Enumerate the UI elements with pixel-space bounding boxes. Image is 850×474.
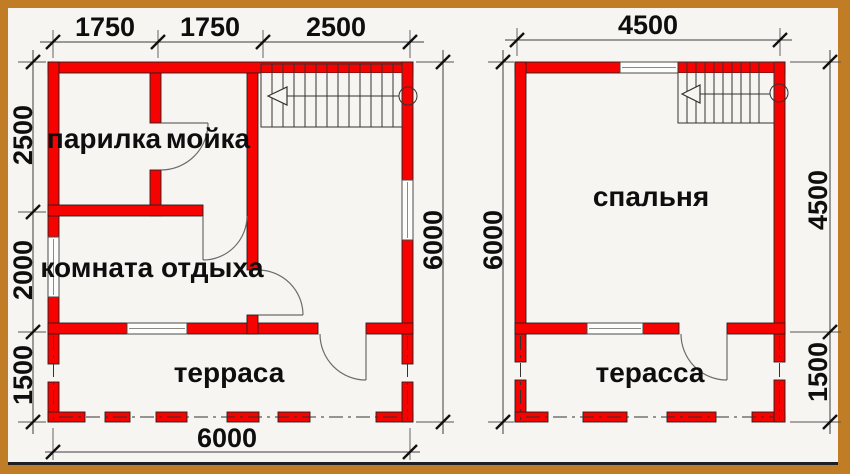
second-floor-plan: 4500 6000 4500 1500 — [478, 10, 841, 434]
drawing-sheet: 1750 1750 2500 2500 2000 1500 — [0, 0, 850, 474]
wall-segment — [515, 323, 587, 334]
wall-segment — [48, 323, 127, 334]
dim-label: 4500 — [618, 10, 678, 40]
room-label-terrasa: терраса — [174, 357, 285, 388]
wall-segment — [247, 73, 258, 270]
bottom-divider-line — [8, 462, 838, 465]
door — [258, 270, 303, 315]
dim-label: 1500 — [803, 342, 833, 402]
room-label-terassa: терасса — [595, 357, 704, 388]
dim-label: 2000 — [8, 240, 38, 300]
wall-segment — [48, 205, 203, 216]
dimensions-second-floor-top: 4500 — [505, 10, 792, 56]
window — [127, 323, 187, 334]
wall-segment — [150, 73, 161, 123]
room-labels-second-floor: спальня терасса — [593, 181, 709, 388]
dimensions-first-floor-bottom: 6000 — [45, 423, 420, 460]
dimensions-first-floor-left: 2500 2000 1500 — [8, 50, 46, 434]
first-floor-plan: 1750 1750 2500 2500 2000 1500 — [8, 12, 454, 460]
room-label-komnata-otdyha: комната отдыха — [40, 252, 264, 283]
wall-segment — [643, 323, 679, 334]
room-label-spalnya: спальня — [593, 181, 709, 212]
dimensions-first-floor-right: 6000 — [416, 50, 454, 434]
wall-segment — [247, 315, 258, 334]
wall-segment — [774, 62, 785, 334]
dimensions-first-floor-top: 1750 1750 2500 — [40, 12, 424, 58]
staircase-first-floor — [261, 64, 417, 127]
window — [402, 180, 413, 240]
door — [320, 334, 366, 380]
room-label-parilka: парилка — [47, 123, 162, 154]
dim-label: 1500 — [8, 345, 38, 405]
dim-label: 1750 — [75, 12, 135, 42]
wall-segment — [402, 62, 413, 180]
dim-label: 6000 — [418, 210, 448, 270]
wall-segment — [515, 62, 620, 73]
dim-label: 4500 — [803, 170, 833, 230]
dim-label: 1750 — [180, 12, 240, 42]
dimensions-second-floor-right: 4500 1500 — [790, 50, 841, 434]
room-label-moyka: мойка — [166, 123, 251, 154]
window — [620, 62, 678, 73]
floor-plans-drawing: 1750 1750 2500 2500 2000 1500 — [0, 0, 850, 474]
wall-segment — [402, 240, 413, 334]
wall-segment — [727, 323, 785, 334]
wall-segment — [366, 323, 413, 334]
dim-label: 6000 — [197, 423, 257, 453]
window — [587, 323, 643, 334]
wall-segment — [515, 62, 526, 334]
dim-label: 2500 — [8, 105, 38, 165]
dim-label: 6000 — [478, 210, 508, 270]
dimensions-second-floor-left: 6000 — [478, 50, 514, 434]
dim-label: 2500 — [306, 12, 366, 42]
